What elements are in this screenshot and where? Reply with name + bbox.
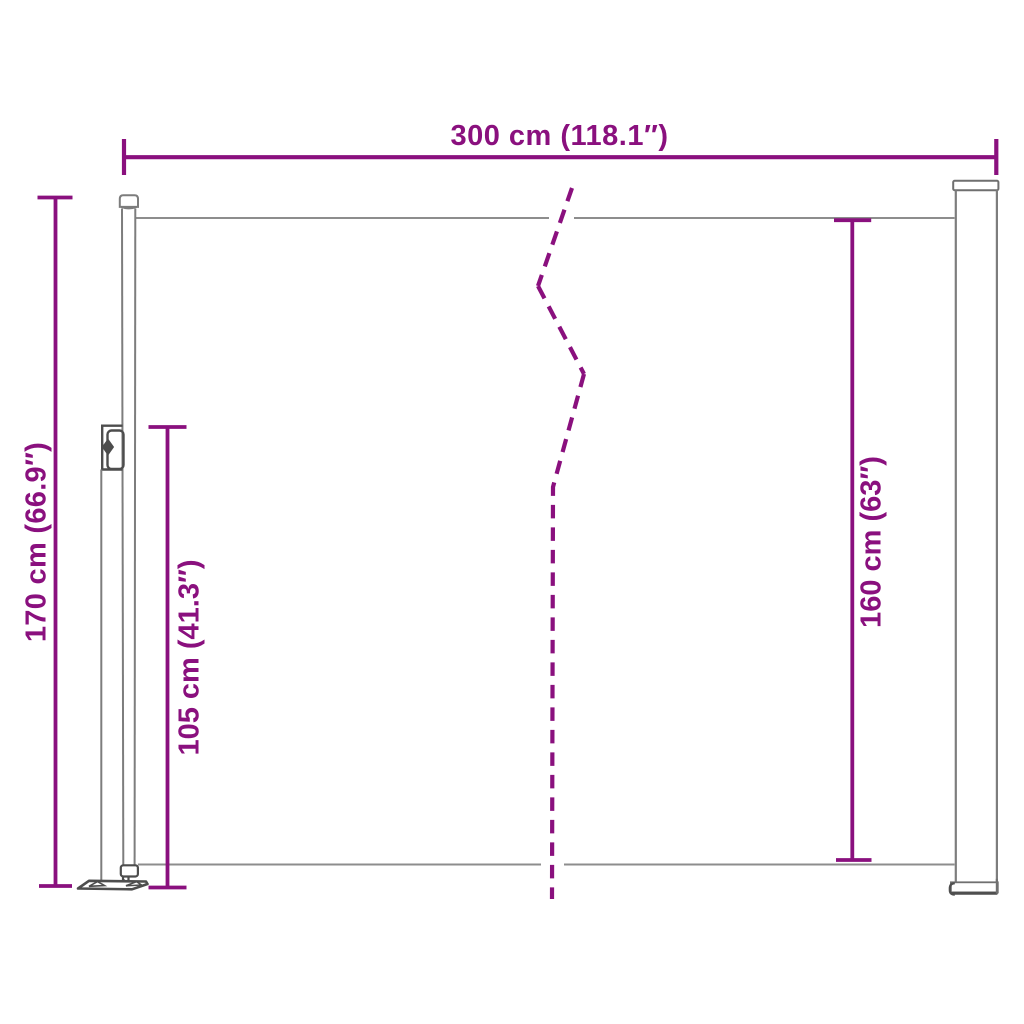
svg-text:300 cm (118.1″): 300 cm (118.1″) [450, 120, 668, 152]
svg-text:105 cm (41.3″): 105 cm (41.3″) [174, 559, 206, 755]
svg-text:160 cm (63″): 160 cm (63″) [856, 456, 888, 628]
svg-text:170 cm (66.9″): 170 cm (66.9″) [21, 442, 53, 642]
